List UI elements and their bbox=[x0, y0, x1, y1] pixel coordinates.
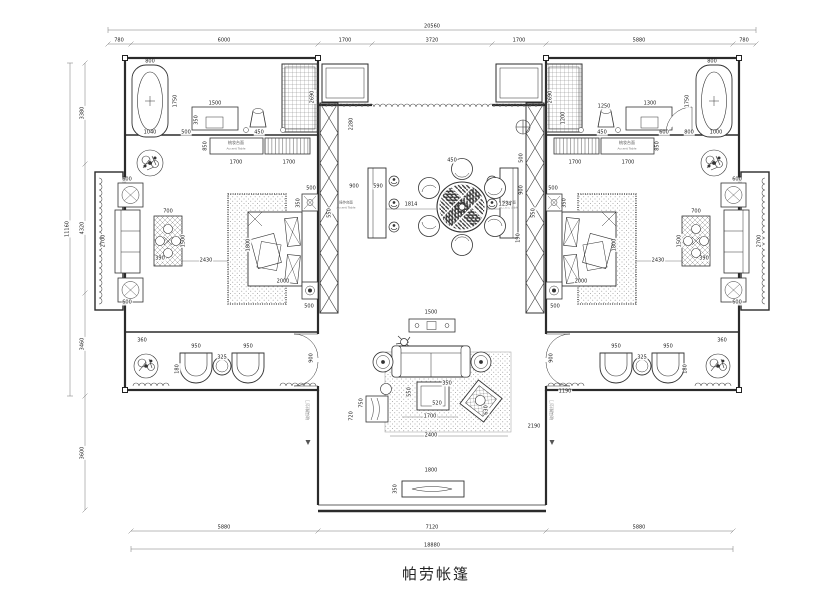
dim-label: 360 bbox=[137, 339, 148, 344]
dim-label: 550 bbox=[532, 208, 537, 219]
dim-left-total: 11160 bbox=[66, 221, 71, 238]
dim-label: 1500 bbox=[678, 234, 683, 248]
dim-label: 2690 bbox=[549, 90, 554, 104]
dim-label: 900 bbox=[550, 353, 555, 364]
dim-label: 1700 bbox=[423, 415, 437, 420]
dim-label: 1040 bbox=[143, 131, 157, 136]
dim-left-seg: 4320 bbox=[81, 221, 86, 235]
dim-label: 550 bbox=[408, 387, 413, 398]
dim-label: 360 bbox=[717, 339, 728, 344]
dim-label: 1800 bbox=[613, 238, 618, 252]
dim-label: 350 bbox=[563, 198, 568, 209]
dim-label: 700 bbox=[163, 210, 174, 215]
dim-label: 1750 bbox=[686, 94, 691, 108]
dim-bottom-seg: 5880 bbox=[217, 526, 231, 531]
dim-label: 450 bbox=[254, 131, 265, 136]
dim-label: 720 bbox=[350, 411, 355, 422]
dim-label: 950 bbox=[663, 345, 674, 350]
dim-top-seg: 5880 bbox=[632, 39, 646, 44]
dim-label: 2400 bbox=[424, 434, 438, 439]
dim-label: 1000 bbox=[709, 131, 723, 136]
dim-label: 600 bbox=[659, 131, 670, 136]
dim-label: 350 bbox=[394, 484, 399, 495]
dim-label: 350 bbox=[442, 382, 453, 387]
dim-label: 800 bbox=[684, 131, 695, 136]
dim-label: 1200 bbox=[562, 111, 567, 125]
dim-top-total: 20560 bbox=[424, 25, 441, 30]
dim-label: 800 bbox=[145, 60, 156, 65]
bar-label-left-en: Accent Table bbox=[337, 207, 356, 210]
dim-label: 1300 bbox=[643, 102, 657, 107]
dim-label: 600 bbox=[122, 178, 133, 183]
dim-label: 500 bbox=[550, 305, 561, 310]
dim-label: 325 bbox=[637, 356, 648, 361]
vanity-label-right-en: Accent Table bbox=[618, 148, 637, 151]
dim-label: 325 bbox=[217, 356, 228, 361]
dim-label: 1500 bbox=[424, 311, 438, 316]
dim-label: 900 bbox=[349, 185, 360, 190]
dim-label: 1814 bbox=[404, 203, 418, 208]
vanity-label-left-en: Accent Table bbox=[227, 148, 246, 151]
drawing-title: 帕劳帐篷 bbox=[402, 563, 470, 584]
dim-label: 450 bbox=[597, 131, 608, 136]
dim-label: 500 bbox=[548, 187, 559, 192]
dim-label: 2280 bbox=[350, 117, 355, 131]
dim-label: 1700 bbox=[282, 161, 296, 166]
dim-left-seg: 3600 bbox=[81, 446, 86, 460]
dim-label: 590 bbox=[373, 185, 384, 190]
dim-label: 1700 bbox=[568, 161, 582, 166]
vanity-label-left-cn: 梳妆台面 bbox=[228, 141, 244, 145]
dim-label: 550 bbox=[328, 208, 333, 219]
dim-label: 1500 bbox=[182, 234, 187, 248]
dim-top-seg: 3720 bbox=[425, 39, 439, 44]
dim-label: 450 bbox=[447, 159, 458, 164]
dim-top-seg: 780 bbox=[739, 39, 750, 44]
dim-label: 390 bbox=[699, 257, 710, 262]
floorplan-canvas: 20560 780 6000 1700 3720 1700 5880 780 1… bbox=[0, 0, 837, 592]
dim-bottom-seg: 5880 bbox=[632, 526, 646, 531]
text-overlay: 20560 780 6000 1700 3720 1700 5880 780 1… bbox=[0, 0, 837, 592]
dim-label: 1500 bbox=[208, 102, 222, 107]
dim-label: 900 bbox=[520, 185, 525, 196]
dim-label: 600 bbox=[122, 301, 133, 306]
dim-label: 1234 bbox=[498, 203, 512, 208]
dim-label: 950 bbox=[611, 345, 622, 350]
dim-label: 1800 bbox=[247, 238, 252, 252]
dim-label: 390 bbox=[155, 257, 166, 262]
dim-label: 2000 bbox=[276, 280, 290, 285]
dim-label: 2190 bbox=[527, 425, 541, 430]
dim-label: 2690 bbox=[311, 90, 316, 104]
dim-top-seg: 780 bbox=[114, 39, 125, 44]
dim-label: 900 bbox=[310, 353, 315, 364]
dim-label: 1750 bbox=[174, 94, 179, 108]
dim-top-seg: 1700 bbox=[512, 39, 526, 44]
dim-label: 350 bbox=[195, 115, 200, 126]
dim-label: 350 bbox=[297, 198, 302, 209]
dim-top-seg: 1700 bbox=[338, 39, 352, 44]
dim-label: 520 bbox=[432, 402, 443, 407]
dim-left-seg: 3380 bbox=[81, 106, 86, 120]
dim-bottom-total: 18880 bbox=[424, 544, 441, 549]
dim-label: 950 bbox=[191, 345, 202, 350]
dim-label: 2430 bbox=[199, 259, 213, 264]
dim-label: 500 bbox=[304, 305, 315, 310]
dim-label: 2000 bbox=[574, 280, 588, 285]
door-label-left: 玻璃推拉门 bbox=[306, 400, 310, 420]
dim-label: 1800 bbox=[424, 469, 438, 474]
dim-label: 190 bbox=[517, 233, 522, 244]
dim-label: 600 bbox=[732, 178, 743, 183]
dim-label: 1250 bbox=[597, 105, 611, 110]
dim-label: 630 bbox=[485, 405, 490, 416]
dim-label: 950 bbox=[243, 345, 254, 350]
dim-label: 1700 bbox=[621, 161, 635, 166]
dim-label: 500 bbox=[181, 131, 192, 136]
dim-label: 1190 bbox=[558, 390, 572, 395]
dim-label: 700 bbox=[691, 210, 702, 215]
dim-label: 500 bbox=[520, 153, 525, 164]
dim-label: 180 bbox=[684, 364, 689, 375]
dim-bottom-seg: 7120 bbox=[425, 526, 439, 531]
dim-top-seg: 6000 bbox=[217, 39, 231, 44]
dim-label: 2700 bbox=[758, 234, 763, 248]
dim-label: 800 bbox=[707, 60, 718, 65]
dim-label: 180 bbox=[176, 364, 181, 375]
dim-label: 750 bbox=[360, 398, 365, 409]
door-label-right: 玻璃推拉门 bbox=[550, 400, 554, 420]
dim-label: 500 bbox=[306, 187, 317, 192]
dim-label: 850 bbox=[656, 141, 661, 152]
dim-label: 2430 bbox=[651, 259, 665, 264]
dim-left-seg: 3460 bbox=[81, 337, 86, 351]
vanity-label-right-cn: 梳妆台面 bbox=[619, 141, 635, 145]
dim-label: 850 bbox=[204, 141, 209, 152]
dim-label: 2700 bbox=[102, 234, 107, 248]
bar-label-left-cn: 操作台面 bbox=[339, 201, 353, 204]
dim-label: 600 bbox=[732, 301, 743, 306]
dim-label: 1700 bbox=[229, 161, 243, 166]
